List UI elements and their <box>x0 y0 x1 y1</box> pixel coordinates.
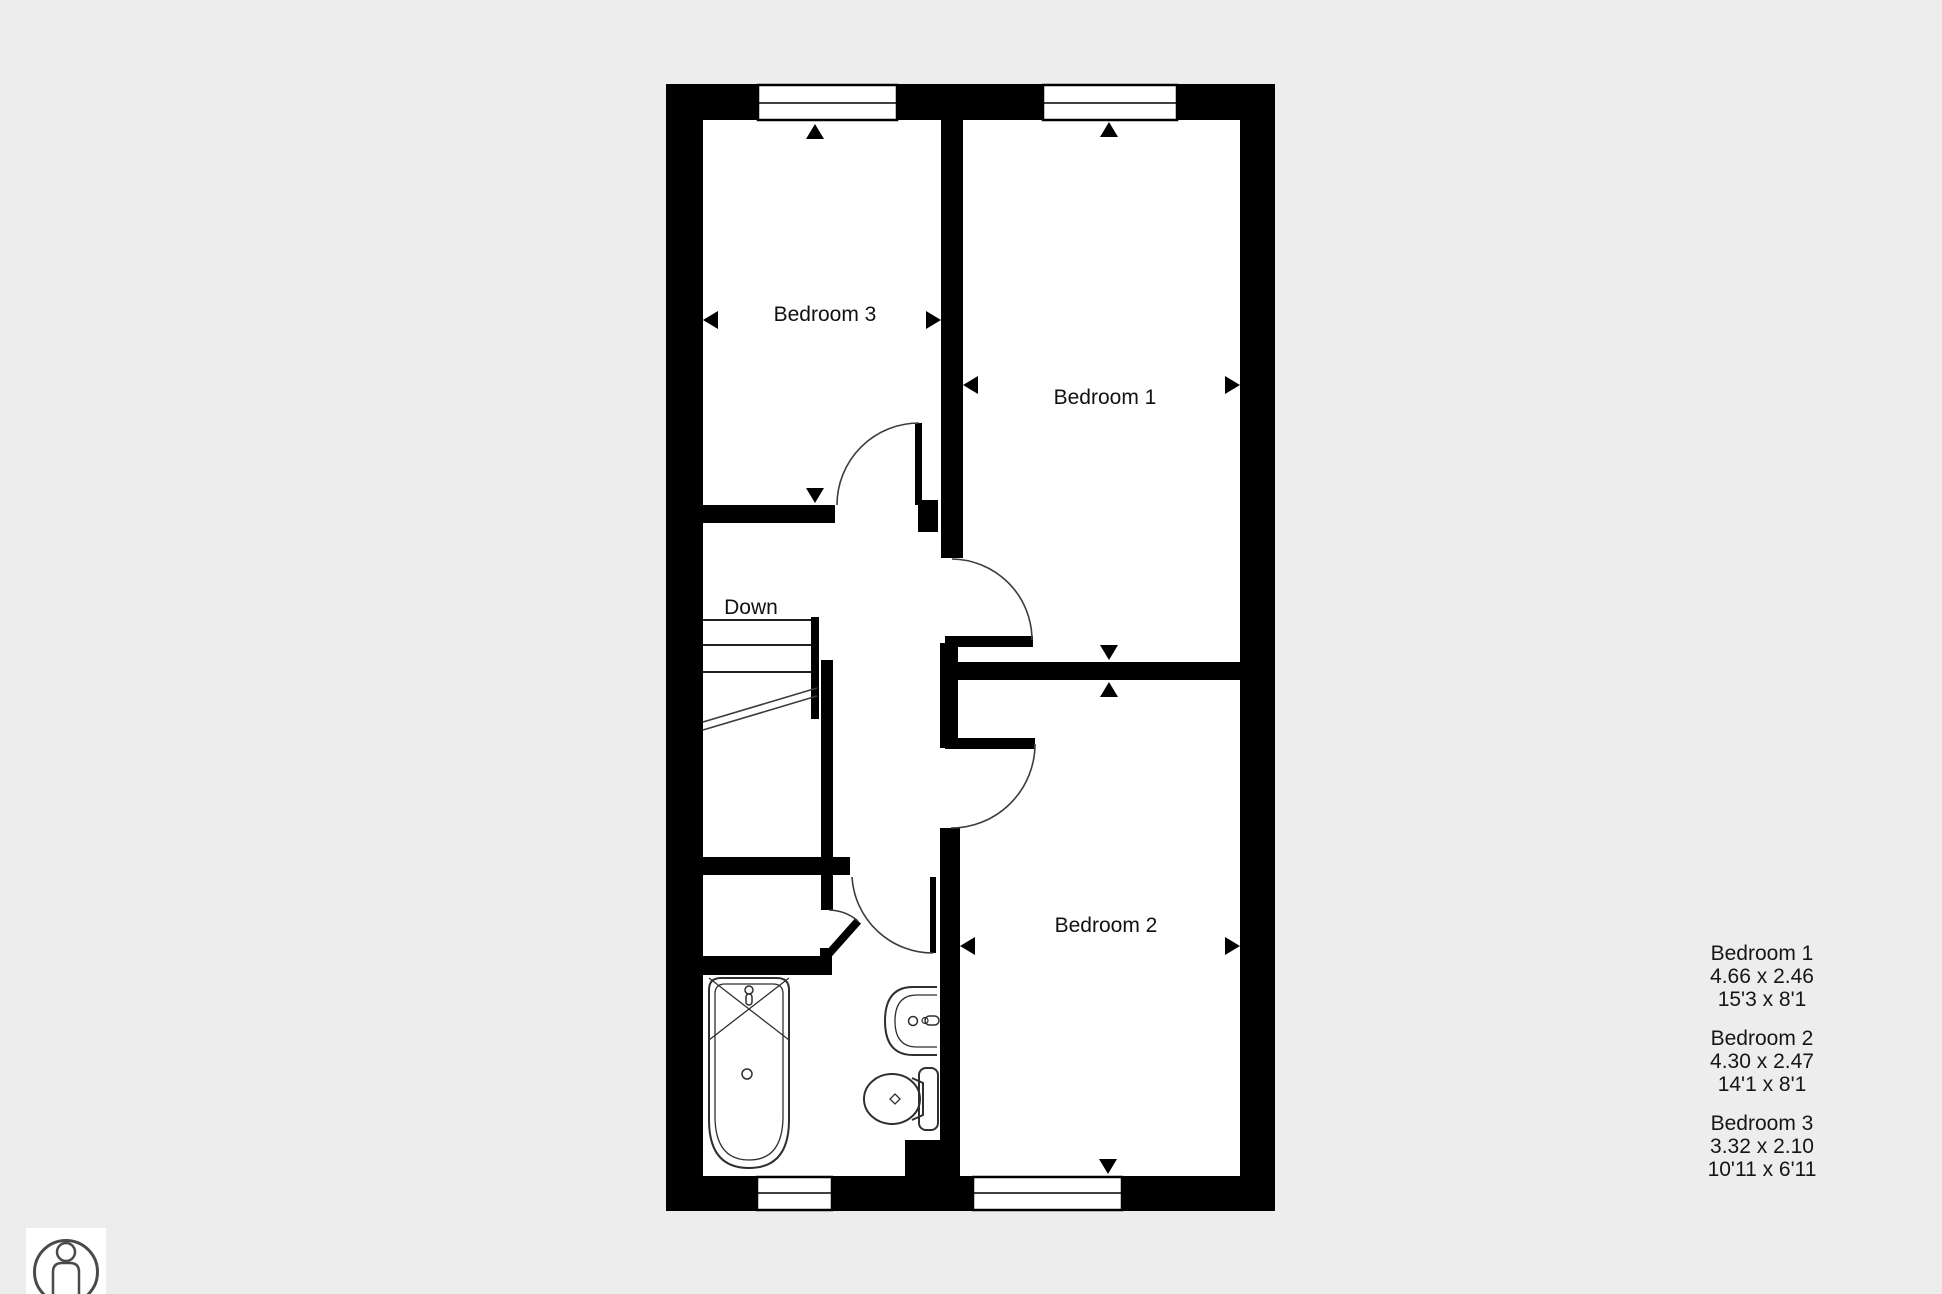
legend-imperial-dimensions: 14'1 x 8'1 <box>1662 1073 1862 1096</box>
wall-understairs-south <box>703 857 850 875</box>
window <box>757 1177 832 1210</box>
legend-entry: Bedroom 3 3.32 x 2.10 10'11 x 6'11 <box>1662 1112 1862 1181</box>
wall-pier-bathroom-se <box>905 1140 960 1176</box>
legend-metric-dimensions: 3.32 x 2.10 <box>1662 1135 1862 1158</box>
wall-bedroom1-bedroom2 <box>958 662 1240 680</box>
scale-person-icon <box>26 1228 106 1294</box>
wall-bedroom3-south <box>703 505 835 523</box>
floorplan-svg: Down <box>0 0 1942 1294</box>
legend-metric-dimensions: 4.30 x 2.47 <box>1662 1050 1862 1073</box>
room-label-bedroom-2: Bedroom 2 <box>1055 914 1158 937</box>
legend-imperial-dimensions: 15'3 x 8'1 <box>1662 988 1862 1011</box>
legend-imperial-dimensions: 10'11 x 6'11 <box>1662 1158 1862 1181</box>
window <box>973 1177 1122 1210</box>
person-icon-body <box>53 1263 79 1294</box>
floor-area <box>666 84 1275 1211</box>
wall-right <box>1240 84 1275 1211</box>
legend-room-name: Bedroom 3 <box>1662 1112 1862 1135</box>
stairs-down-label: Down <box>724 596 778 619</box>
legend-entry: Bedroom 1 4.66 x 2.46 15'3 x 8'1 <box>1662 942 1862 1011</box>
legend-room-name: Bedroom 1 <box>1662 942 1862 965</box>
wall-left <box>666 84 703 1211</box>
legend-room-name: Bedroom 2 <box>1662 1027 1862 1050</box>
room-label-bedroom-1: Bedroom 1 <box>1054 386 1157 409</box>
wall-stair-rail <box>811 617 819 719</box>
dimensions-legend: Bedroom 1 4.66 x 2.46 15'3 x 8'1 Bedroom… <box>1662 942 1862 1197</box>
room-label-bedroom-3: Bedroom 3 <box>774 303 877 326</box>
window <box>1043 85 1177 120</box>
wall-hall-east <box>940 643 958 748</box>
legend-metric-dimensions: 4.66 x 2.46 <box>1662 965 1862 988</box>
floorplan-page: Down <box>0 0 1942 1294</box>
legend-entry: Bedroom 2 4.30 x 2.47 14'1 x 8'1 <box>1662 1027 1862 1096</box>
window <box>758 85 897 120</box>
wall-bathroom-north <box>703 956 832 975</box>
person-icon-head <box>57 1243 75 1261</box>
wall-bathroom-bedroom2 <box>940 828 960 1176</box>
wall-bedroom3-bedroom1 <box>941 120 963 558</box>
